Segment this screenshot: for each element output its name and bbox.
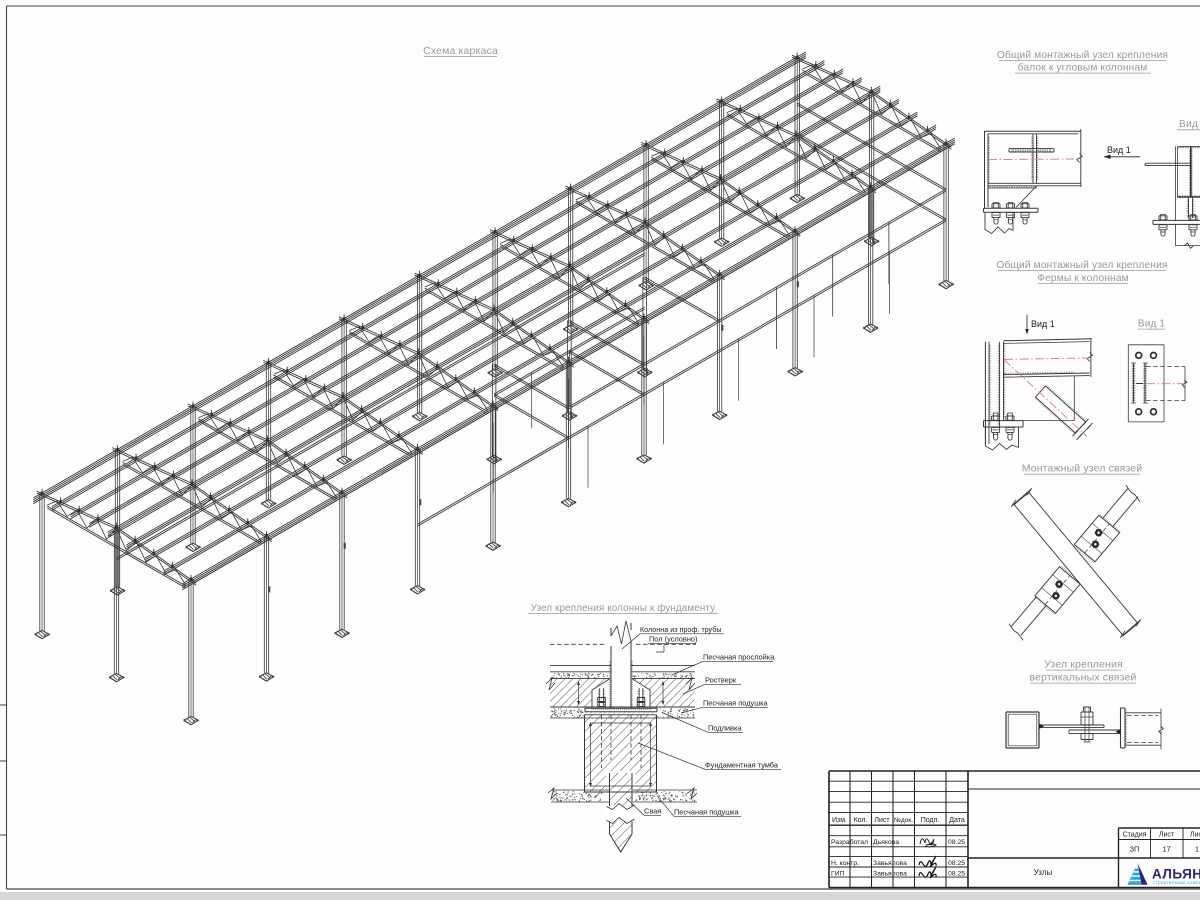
svg-text:Вид 1: Вид 1: [1107, 145, 1131, 155]
svg-text:Завьялова: Завьялова: [873, 860, 907, 867]
svg-text:08.25: 08.25: [948, 871, 965, 878]
svg-text:Н. контр.: Н. контр.: [831, 860, 859, 867]
svg-text:ГИП: ГИП: [831, 871, 845, 878]
svg-text:Вид 1: Вид 1: [1031, 319, 1055, 329]
svg-text:№док.: №док.: [894, 817, 913, 824]
svg-text:08.25: 08.25: [948, 839, 965, 846]
svg-text:Подп.: Подп.: [921, 817, 940, 824]
svg-text:Песчаная подушка: Песчаная подушка: [674, 808, 740, 817]
svg-text:Изм.: Изм.: [832, 817, 847, 824]
svg-text:Лист: Лист: [1159, 832, 1175, 839]
svg-text:1: 1: [1195, 845, 1199, 854]
svg-text:Дата: Дата: [949, 817, 965, 824]
svg-text:Стадия: Стадия: [1123, 832, 1147, 839]
svg-text:Кол.: Кол.: [854, 817, 868, 824]
svg-text:Монтажный узел связей: Монтажный узел связей: [1022, 463, 1143, 475]
svg-text:Узел крепления: Узел крепления: [1044, 659, 1123, 671]
svg-text:Завьялова: Завьялова: [873, 871, 907, 878]
svg-text:08.25: 08.25: [948, 860, 965, 867]
svg-text:Подливка: Подливка: [708, 724, 742, 733]
svg-text:Узел крепления колонны к фунда: Узел крепления колонны к фундаменту: [531, 603, 715, 614]
svg-text:Колонна из проф. трубы: Колонна из проф. трубы: [640, 625, 722, 634]
svg-text:17: 17: [1162, 845, 1170, 854]
svg-text:Фундаментная тумба: Фундаментная тумба: [705, 761, 779, 770]
svg-text:Вид 1: Вид 1: [1138, 319, 1165, 330]
svg-text:Лист: Лист: [874, 817, 890, 824]
svg-text:Песчаная подушка: Песчаная подушка: [703, 699, 769, 708]
svg-text:Фермы к колоннам: Фермы к колоннам: [1037, 273, 1129, 284]
svg-text:Разработал: Разработал: [831, 838, 868, 846]
svg-text:Схема каркаса: Схема каркаса: [423, 45, 498, 57]
svg-text:ЗП: ЗП: [1130, 845, 1140, 854]
svg-text:Лис: Лис: [1190, 832, 1200, 839]
svg-text:Узлы: Узлы: [1034, 868, 1053, 877]
svg-text:Общий монтажный узел крепления: Общий монтажный узел крепления: [996, 259, 1167, 271]
svg-text:Вид 1: Вид 1: [1179, 119, 1200, 130]
svg-text:вертикальных связей: вертикальных связей: [1029, 672, 1136, 684]
svg-text:строительная компания: строительная компания: [1153, 880, 1200, 885]
svg-text:Ростверк: Ростверк: [705, 676, 737, 685]
svg-text:Общий монтажный узел крепления: Общий монтажный узел крепления: [997, 49, 1168, 61]
svg-text:Песчаная прослойка: Песчаная прослойка: [703, 653, 775, 662]
svg-text:Пол (условно): Пол (условно): [649, 635, 697, 644]
svg-text:Дьякова: Дьякова: [873, 839, 899, 846]
svg-text:балок к угловым колоннам: балок к угловым колоннам: [1018, 62, 1148, 74]
svg-text:Свая: Свая: [644, 807, 661, 816]
